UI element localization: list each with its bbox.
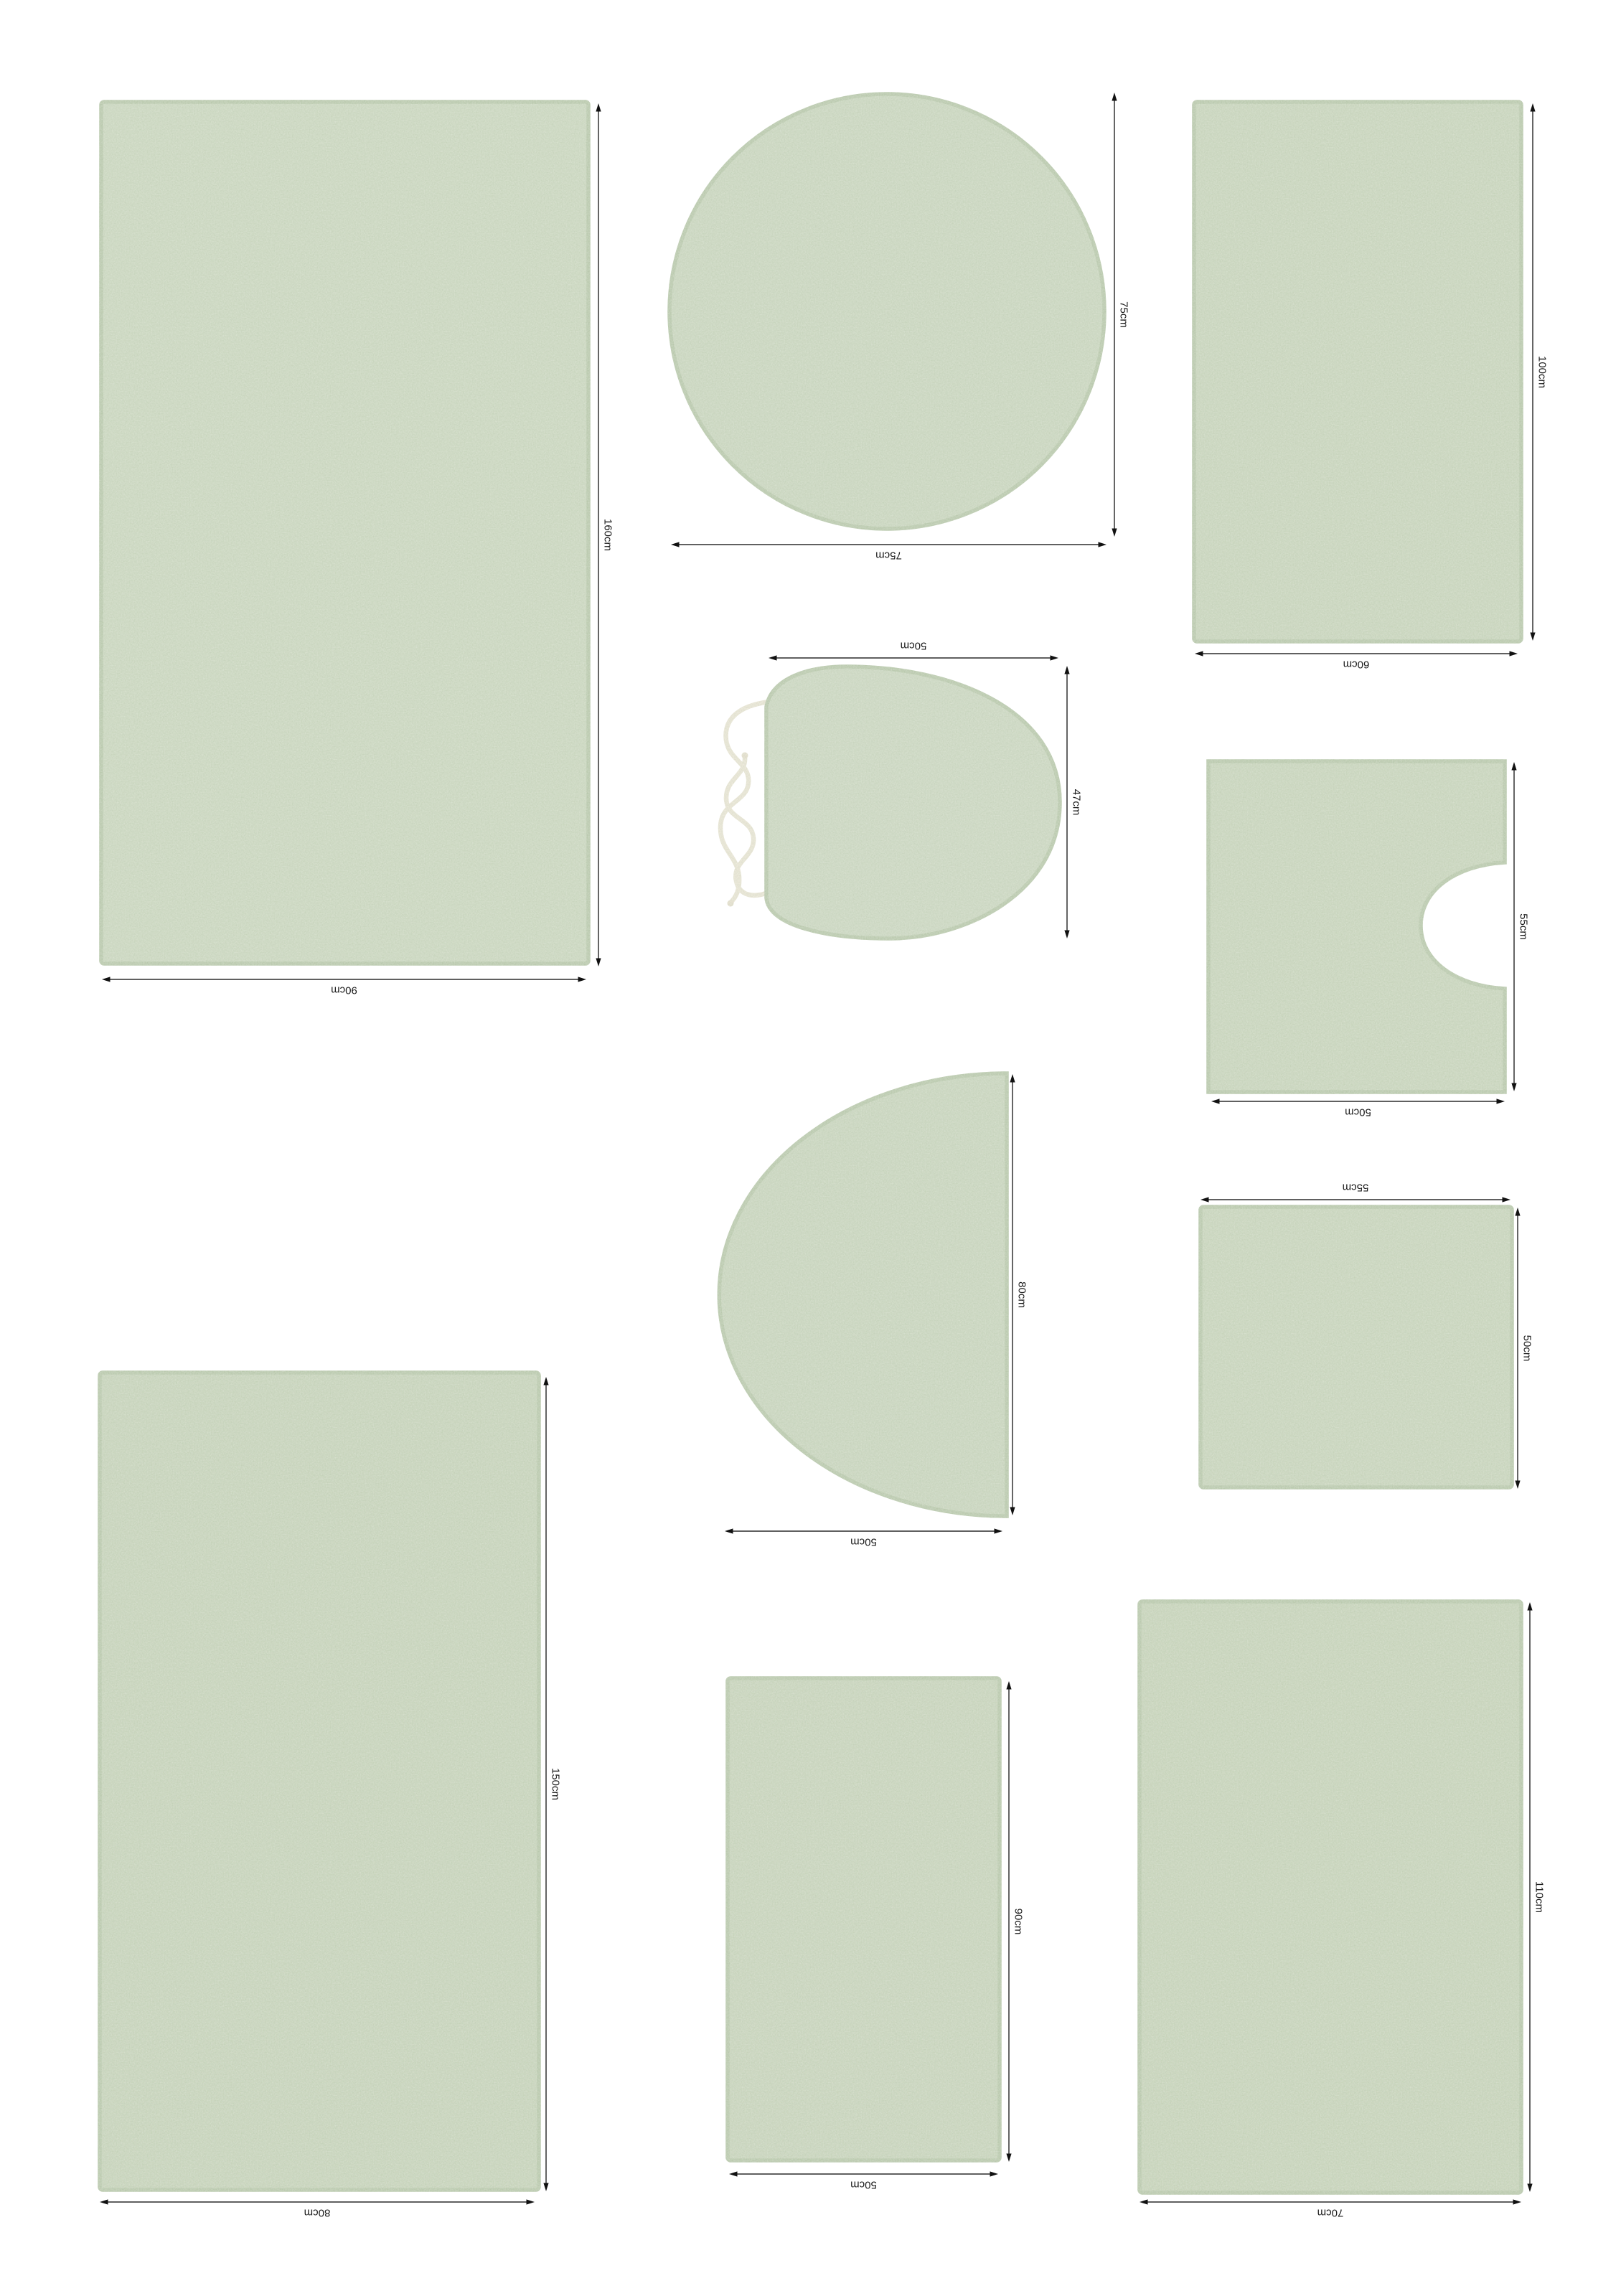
- svg-text:110cm: 110cm: [1533, 1881, 1546, 1913]
- svg-text:50cm: 50cm: [1345, 1106, 1371, 1119]
- svg-text:55cm: 55cm: [1343, 1182, 1369, 1194]
- svg-text:47cm: 47cm: [1071, 789, 1083, 816]
- svg-text:75cm: 75cm: [1118, 301, 1130, 328]
- svg-text:90cm: 90cm: [1012, 1909, 1025, 1935]
- svg-text:60cm: 60cm: [1343, 659, 1370, 671]
- svg-text:70cm: 70cm: [1317, 2207, 1344, 2219]
- svg-text:75cm: 75cm: [875, 550, 902, 562]
- svg-text:80cm: 80cm: [1016, 1281, 1028, 1308]
- svg-text:50cm: 50cm: [850, 2179, 877, 2191]
- svg-text:50cm: 50cm: [850, 1536, 877, 1548]
- svg-text:55cm: 55cm: [1518, 913, 1530, 940]
- svg-text:160cm: 160cm: [602, 519, 614, 551]
- svg-text:50cm: 50cm: [901, 640, 927, 652]
- svg-text:150cm: 150cm: [550, 1768, 562, 1800]
- svg-text:50cm: 50cm: [1521, 1335, 1533, 1362]
- svg-text:100cm: 100cm: [1536, 356, 1549, 388]
- svg-text:80cm: 80cm: [304, 2207, 331, 2219]
- svg-text:90cm: 90cm: [331, 984, 357, 997]
